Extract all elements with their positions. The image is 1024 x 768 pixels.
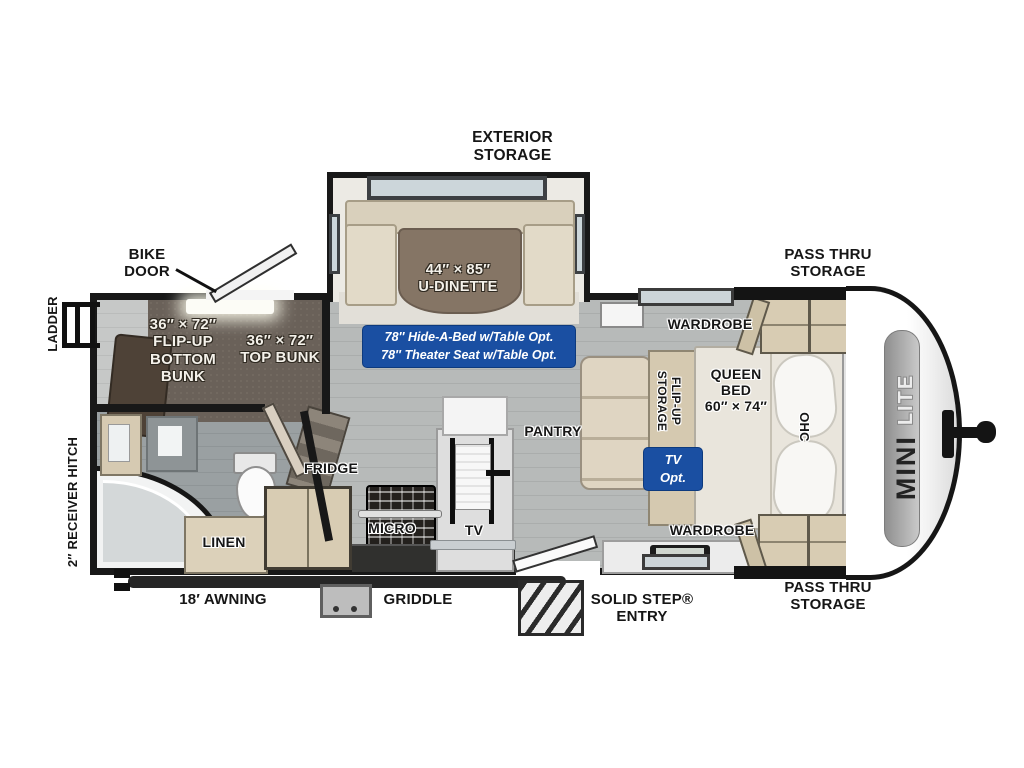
label-exterior-storage: EXTERIOR STORAGE	[440, 129, 585, 165]
label-micro: MICRO	[356, 520, 428, 536]
slideout-side-window-right	[574, 214, 585, 274]
brand-logo: MINI LITE	[889, 335, 923, 539]
pass-thru-hatch-top	[734, 287, 850, 300]
pass-thru-hatch-bottom	[734, 566, 850, 579]
label-flip-up-storage: FLIP-UP STORAGE	[652, 359, 682, 443]
label-fridge: FRIDGE	[294, 460, 368, 476]
oven-handle	[358, 510, 442, 518]
dinette-right-cushion	[523, 224, 575, 306]
label-pass-thru-storage-top: PASS THRU STORAGE	[766, 246, 890, 281]
griddle-knob2-icon	[351, 606, 357, 612]
label-wardrobe-top: WARDROBE	[658, 316, 762, 332]
badge-tv-option: TV Opt.	[643, 447, 703, 491]
griddle-knob-icon	[333, 606, 339, 612]
label-linen: LINEN	[188, 534, 260, 550]
label-flip-up-bottom-bunk: 36″ × 72″ FLIP-UP BOTTOM BUNK	[128, 316, 238, 385]
floorplan-canvas: MINI LITE EXTERIOR STORAGE BIKE DOOR PAS…	[0, 0, 1024, 768]
bedroom-window-bottom	[642, 554, 710, 570]
tv-mount-arm	[486, 470, 510, 476]
label-griddle: GRIDDLE	[376, 591, 460, 608]
label-bike-door: BIKE DOOR	[108, 246, 186, 281]
label-queen-bed: QUEEN BED 60″ × 74″	[692, 366, 780, 414]
bunk-ceiling-light	[186, 299, 274, 314]
bathroom-wall	[97, 404, 265, 412]
label-tv: TV	[450, 522, 498, 538]
slideout-window	[367, 176, 547, 200]
label-receiver-hitch: 2″ RECEIVER HITCH	[66, 420, 82, 584]
wardrobe-cabinet-bottom	[758, 514, 858, 570]
bedroom-window-top	[638, 288, 734, 306]
solid-step-icon	[518, 580, 584, 636]
rear-bumper-bracket	[114, 569, 130, 578]
label-u-dinette: 44″ × 85″ U-DINETTE	[400, 262, 516, 295]
bath-sink	[108, 424, 130, 462]
slideout-side-window-left	[329, 214, 340, 274]
badge-hide-a-bed-option: 78″ Hide-A-Bed w/Table Opt. 78″ Theater …	[362, 325, 576, 368]
label-wardrobe-bottom: WARDROBE	[660, 522, 764, 538]
wardrobe-cabinet-top	[760, 296, 858, 354]
hitch-ball-icon	[976, 421, 996, 443]
bath-counter-sink	[158, 426, 182, 456]
label-solid-step-entry: SOLID STEP® ENTRY	[578, 591, 706, 626]
counter-shelf	[430, 540, 516, 550]
dinette-left-cushion	[345, 224, 397, 306]
label-pantry: PANTRY	[514, 423, 592, 439]
pantry-cabinet	[442, 396, 508, 436]
tv-screen	[455, 444, 491, 510]
rear-bumper-bracket2	[114, 583, 130, 591]
brand-logo-mini: MINI	[891, 435, 922, 500]
label-top-bunk: 36″ × 72″ TOP BUNK	[228, 332, 332, 367]
label-pass-thru-storage-bottom: PASS THRU STORAGE	[766, 579, 890, 614]
label-ladder: LADDER	[46, 292, 62, 356]
exterior-griddle	[320, 584, 372, 618]
label-awning: 18′ AWNING	[166, 591, 280, 608]
brand-logo-lite: LITE	[895, 374, 918, 425]
refrigerator	[264, 486, 352, 570]
ladder-icon	[62, 302, 100, 348]
label-ohc: OHC	[795, 403, 811, 451]
